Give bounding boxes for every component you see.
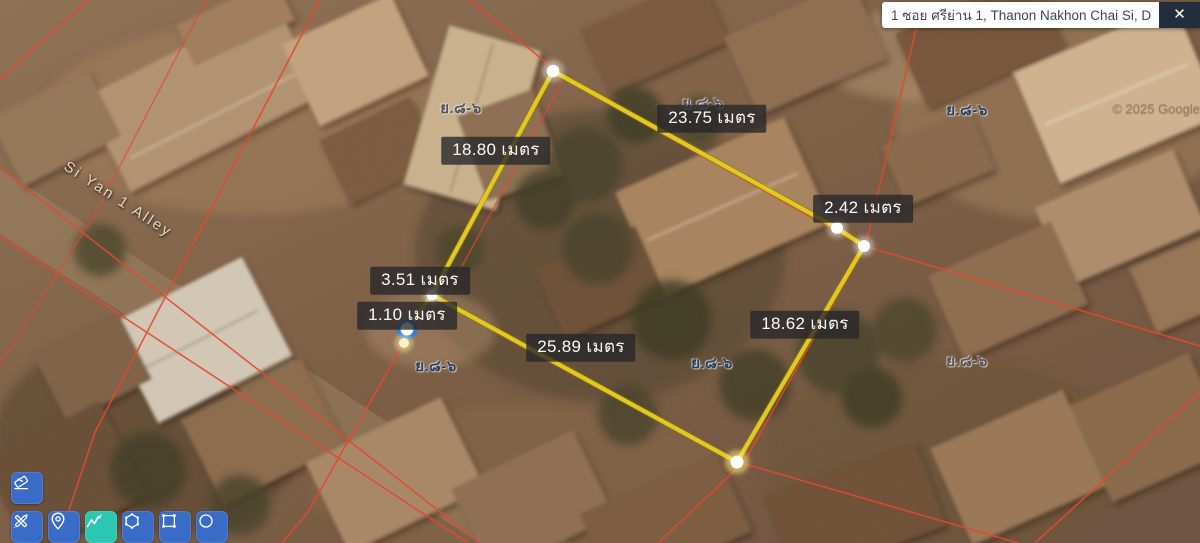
zone-label: ย.๘-๖	[440, 96, 482, 120]
circle-icon	[196, 511, 216, 531]
measurement-label: 1.10 เมตร	[357, 302, 457, 330]
measurement-label: 2.42 เมตร	[813, 195, 913, 223]
zone-label: ย.๘-๖	[415, 354, 457, 378]
tool-rectangle-button[interactable]	[159, 511, 191, 543]
measurement-label: 18.62 เมตร	[750, 311, 859, 339]
measurement-label: 3.51 เมตร	[370, 267, 470, 295]
tool-eraser-button[interactable]	[11, 472, 43, 504]
measure-icon	[11, 511, 31, 531]
vertex-handle[interactable]	[395, 334, 413, 352]
zone-label: ย.๘-๖	[946, 98, 988, 122]
vertex-handle[interactable]	[542, 60, 564, 82]
tool-marker-button[interactable]	[48, 511, 80, 543]
measurement-label: 23.75 เมตร	[657, 105, 766, 133]
search-bar: ✕	[882, 2, 1200, 28]
search-clear-button[interactable]: ✕	[1159, 2, 1200, 28]
eraser-icon	[11, 472, 31, 492]
measurement-label: 18.80 เมตร	[441, 137, 550, 165]
measurement-label: 25.89 เมตร	[526, 334, 635, 362]
vertex-handle[interactable]	[725, 450, 749, 474]
satellite-map[interactable]	[0, 0, 1200, 543]
close-icon: ✕	[1173, 6, 1186, 23]
rectangle-icon	[159, 511, 179, 531]
polyline-icon	[85, 511, 105, 531]
zone-label: ย.๘-๖	[946, 349, 988, 373]
polygon-icon	[122, 511, 142, 531]
search-input[interactable]	[882, 2, 1159, 28]
tool-measure-button[interactable]	[11, 511, 43, 543]
marker-icon	[48, 511, 68, 531]
tool-circle-button[interactable]	[196, 511, 228, 543]
map-canvas[interactable]: ย.๘-๖ ย.๘-๖ ย.๘-๖ ย.๘-๖ ย.๘-๖ ย.๘-๖ Si Y…	[0, 0, 1200, 543]
zone-label: ย.๘-๖	[691, 351, 733, 375]
grain-overlay	[0, 0, 1200, 543]
vertex-handle[interactable]	[854, 236, 874, 256]
tool-polyline-button[interactable]	[85, 511, 117, 543]
tool-polygon-button[interactable]	[122, 511, 154, 543]
map-attribution: © 2025 Google	[1112, 101, 1200, 116]
